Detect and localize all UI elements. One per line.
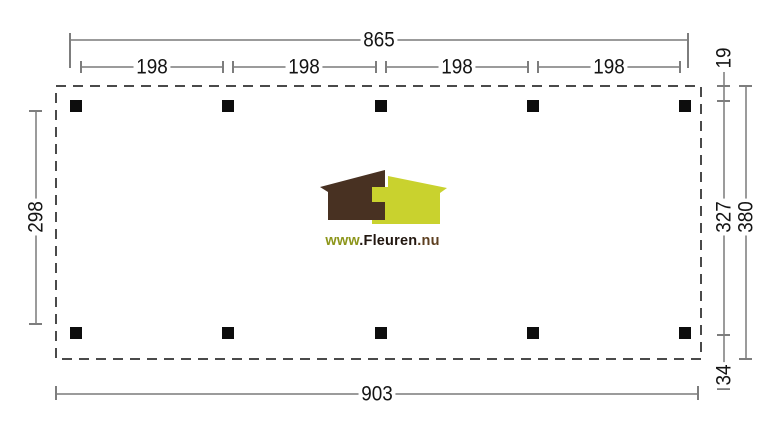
dimension-tick — [537, 61, 539, 73]
dimension-tick — [69, 33, 71, 68]
dimension-label-298: 298 — [26, 199, 47, 236]
dimension-label-19: 19 — [714, 45, 735, 71]
logo-url-tld: .nu — [417, 233, 439, 249]
logo-url-name: .Fleuren — [359, 233, 417, 249]
dimension-tick — [375, 61, 377, 73]
fleuren-logo-houses — [317, 168, 448, 226]
dimension-tick — [717, 85, 730, 87]
post-marker — [375, 100, 387, 112]
dimension-tick — [739, 358, 752, 360]
dimension-tick — [679, 61, 681, 73]
post-marker — [679, 100, 691, 112]
logo-url: www.Fleuren.nu — [317, 234, 448, 250]
dimension-tick — [55, 386, 57, 400]
dimension-tick — [80, 61, 82, 73]
dimension-label-327: 327 — [714, 199, 735, 236]
dimension-tick — [222, 61, 224, 73]
post-marker — [222, 327, 234, 339]
dimension-tick — [717, 334, 730, 336]
post-marker — [70, 100, 82, 112]
dimension-tick — [29, 110, 42, 112]
floor-plan-drawing: 865 198 198 198 198 298 19 327 34 380 90… — [0, 0, 770, 436]
dimension-tick — [739, 85, 752, 87]
dimension-label-34: 34 — [714, 362, 735, 388]
post-marker — [679, 327, 691, 339]
post-marker — [527, 100, 539, 112]
dimension-tick — [385, 61, 387, 73]
dimension-label-198: 198 — [286, 57, 323, 78]
post-marker — [222, 100, 234, 112]
dimension-tick — [717, 388, 730, 390]
fleuren-logo: www.Fleuren.nu — [317, 168, 448, 250]
dimension-tick — [232, 61, 234, 73]
post-marker — [70, 327, 82, 339]
logo-url-www: www — [325, 233, 359, 249]
dimension-tick — [697, 386, 699, 400]
dimension-label-198: 198 — [439, 57, 476, 78]
dimension-tick — [717, 100, 730, 102]
dimension-tick — [527, 61, 529, 73]
dimension-label-380: 380 — [736, 199, 757, 236]
dimension-label-903: 903 — [359, 384, 396, 405]
dimension-tick — [687, 33, 689, 68]
dimension-tick — [29, 323, 42, 325]
dimension-label-198: 198 — [134, 57, 171, 78]
dimension-label-198: 198 — [591, 57, 628, 78]
post-marker — [375, 327, 387, 339]
dimension-label-865: 865 — [361, 30, 398, 51]
post-marker — [527, 327, 539, 339]
